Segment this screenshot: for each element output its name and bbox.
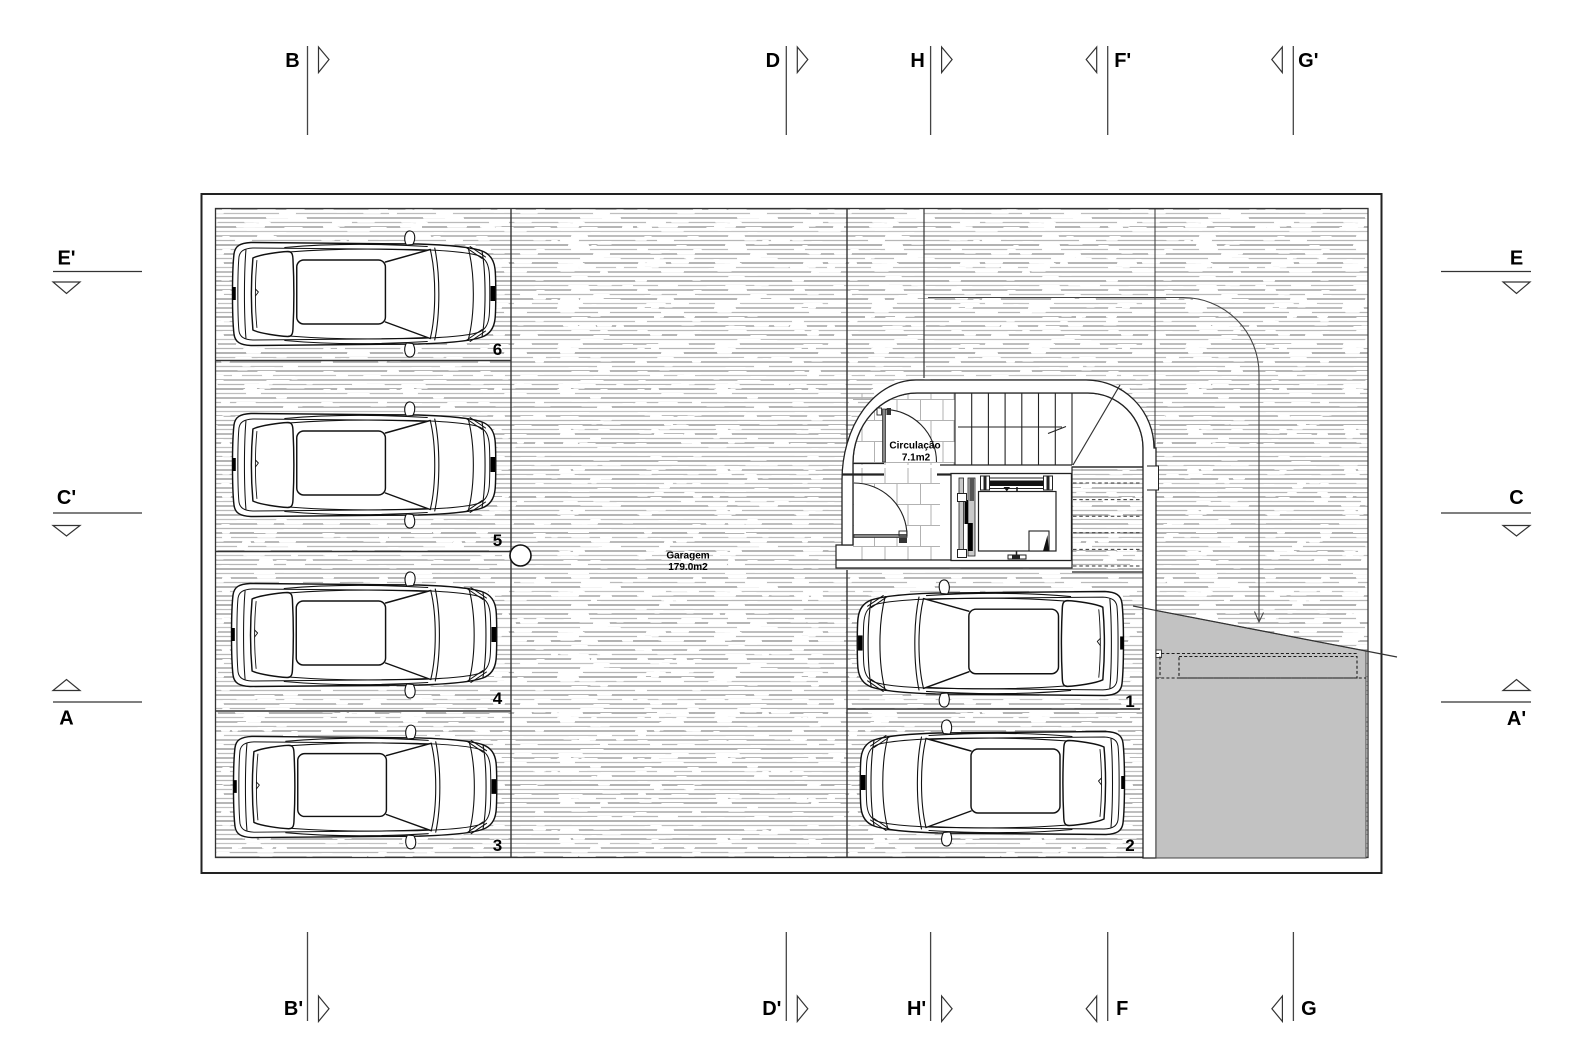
svg-text:D': D'	[762, 998, 781, 1020]
svg-text:E: E	[1510, 248, 1523, 270]
svg-text:H: H	[910, 50, 924, 72]
svg-text:7.1m2: 7.1m2	[902, 453, 931, 464]
svg-text:3: 3	[493, 836, 502, 855]
svg-text:B': B'	[284, 998, 303, 1020]
svg-text:A': A'	[1507, 708, 1526, 730]
svg-text:G: G	[1301, 998, 1317, 1020]
svg-text:B: B	[285, 50, 299, 72]
svg-text:2: 2	[1125, 836, 1134, 855]
svg-text:5: 5	[493, 531, 502, 550]
svg-text:Circulação: Circulação	[889, 441, 940, 452]
svg-text:179.0m2: 179.0m2	[668, 562, 708, 573]
svg-text:G': G'	[1298, 50, 1318, 72]
svg-text:F': F'	[1114, 50, 1131, 72]
svg-text:C: C	[1509, 487, 1523, 509]
svg-text:F: F	[1116, 998, 1128, 1020]
svg-text:C': C'	[57, 487, 76, 509]
svg-text:Garagem: Garagem	[666, 551, 709, 562]
svg-text:H': H'	[907, 998, 926, 1020]
svg-text:6: 6	[493, 340, 502, 359]
svg-text:1: 1	[1125, 692, 1134, 711]
svg-text:E': E'	[57, 248, 75, 270]
svg-text:D: D	[766, 50, 780, 72]
svg-text:4: 4	[493, 689, 503, 708]
svg-text:A: A	[59, 708, 73, 730]
